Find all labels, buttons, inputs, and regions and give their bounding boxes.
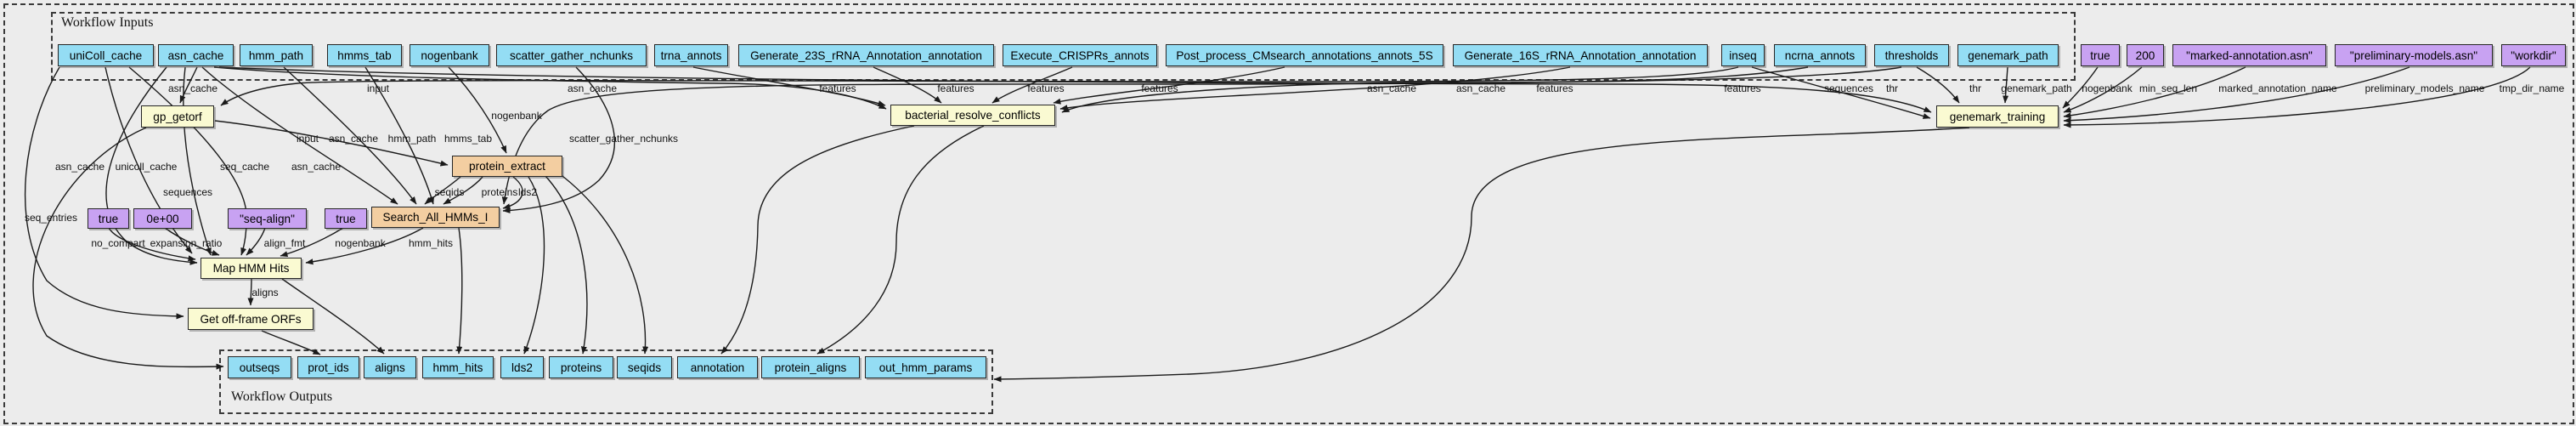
edge-label: hmms_tab — [444, 133, 492, 145]
scatter-node-protein_extract[interactable]: protein_extract — [452, 156, 562, 177]
step-node-gp_getorf[interactable]: gp_getorf — [141, 105, 214, 128]
edge — [504, 67, 1901, 204]
edge-label: hmm_hits — [409, 237, 453, 249]
edge-label: asn_cache — [1367, 82, 1416, 94]
input-node-Generate_16S_rRNA_Annotation_annotation[interactable]: Generate_16S_rRNA_Annotation_annotation — [1453, 44, 1708, 66]
literal-node-literal-workdir: "workdir" — [2501, 44, 2566, 66]
input-node-scatter_gather_nchunks[interactable]: scatter_gather_nchunks — [496, 44, 647, 66]
step-node-Get_off_frame_ORFs[interactable]: Get off-frame ORFs — [188, 308, 314, 330]
edge-label: seq_entries — [25, 212, 77, 224]
edge-label: features — [1141, 82, 1178, 94]
output-node-aligns[interactable]: aligns — [364, 356, 416, 378]
output-node-seqids[interactable]: seqids — [617, 356, 672, 378]
edge — [1917, 67, 1959, 103]
edge — [221, 67, 1738, 105]
edge-label: asn_cache — [329, 133, 378, 145]
scatter-node-Search_All_HMMs_I[interactable]: Search_All_HMMs_I — [371, 207, 500, 228]
output-node-proteins[interactable]: proteins — [549, 356, 613, 378]
edge-label: features — [937, 82, 974, 94]
edge-label: sequences — [163, 186, 212, 198]
edge-label: seqids — [435, 186, 465, 198]
output-node-annotation[interactable]: annotation — [677, 356, 758, 378]
edge — [246, 228, 265, 255]
literal-node-literal-marked-annotation: "marked-annotation.asn" — [2172, 44, 2326, 66]
output-node-outseqs[interactable]: outseqs — [228, 356, 291, 378]
literal-node-literal-0e00: 0e+00 — [133, 208, 192, 229]
edge-label: features — [1536, 82, 1573, 94]
edge-label: input — [367, 82, 389, 94]
edge-label: asn_cache — [291, 161, 341, 173]
output-node-hmm_hits[interactable]: hmm_hits — [422, 356, 494, 378]
edge-label: thr — [1969, 82, 1981, 94]
edge-label: nogenbank — [2082, 82, 2132, 94]
edge-label: nogenbank — [335, 237, 385, 249]
literal-node-literal-seq-align: "seq-align" — [228, 208, 307, 229]
input-node-Generate_23S_rRNA_Annotation_annotation[interactable]: Generate_23S_rRNA_Annotation_annotation — [738, 44, 994, 66]
workflow-diagram: Workflow Inputs Workflow Outputs — [0, 0, 2576, 426]
input-node-trna_annots[interactable]: trna_annots — [654, 44, 728, 66]
step-node-genemark_training[interactable]: genemark_training — [1936, 105, 2059, 128]
edge-label: proteins — [482, 186, 518, 198]
edge — [524, 177, 545, 354]
output-node-out_hmm_params[interactable]: out_hmm_params — [865, 356, 986, 378]
edge-label: aligns — [251, 287, 278, 298]
literal-node-literal-true-2: true — [88, 208, 129, 229]
edge — [817, 126, 984, 354]
edge — [214, 67, 886, 109]
edge — [262, 331, 320, 355]
edge-label: align_fmt — [264, 237, 306, 249]
edge-label: lds2 — [518, 186, 537, 198]
edge-label: scatter_gather_nchunks — [569, 133, 678, 145]
edge-label: marked_annotation_name — [2218, 82, 2336, 94]
edge — [994, 128, 1969, 379]
edge — [721, 126, 914, 354]
edge-label: no_compart — [91, 237, 144, 249]
step-node-Map_HMM_Hits[interactable]: Map HMM Hits — [201, 258, 302, 279]
input-node-uniColl_cache[interactable]: uniColl_cache — [58, 44, 154, 66]
input-node-asn_cache[interactable]: asn_cache — [158, 44, 234, 66]
literal-node-literal-true-3: true — [325, 208, 367, 229]
workflow-outputs-label: Workflow Outputs — [231, 389, 332, 405]
edge — [459, 228, 462, 354]
input-node-hmms_tab[interactable]: hmms_tab — [327, 44, 402, 66]
input-node-thresholds[interactable]: thresholds — [1874, 44, 1949, 66]
edge — [25, 67, 184, 316]
edge-label: expansion_ratio — [150, 237, 223, 249]
input-node-inseq[interactable]: inseq — [1721, 44, 1765, 66]
edge-label: preliminary_models_name — [2365, 82, 2485, 94]
edge-label: input — [297, 133, 319, 145]
edge-label: asn_cache — [1456, 82, 1505, 94]
edge-label: features — [1724, 82, 1760, 94]
edge-label: features — [819, 82, 856, 94]
edge — [219, 67, 1931, 112]
literal-node-literal-true-1: true — [2081, 44, 2120, 66]
edge-label: tmp_dir_name — [2500, 82, 2565, 94]
edge-label: unicoll_cache — [116, 161, 178, 173]
input-node-nogenbank[interactable]: nogenbank — [410, 44, 489, 66]
input-node-hmm_path[interactable]: hmm_path — [240, 44, 313, 66]
edge-label: nogenbank — [491, 110, 541, 122]
edge — [559, 173, 646, 354]
workflow-inputs-label: Workflow Inputs — [61, 15, 153, 31]
edge-label: asn_cache — [568, 82, 617, 94]
input-node-genemark_path[interactable]: genemark_path — [1957, 44, 2059, 66]
edge-label: sequences — [1824, 82, 1873, 94]
edge-label: seq_cache — [220, 161, 269, 173]
output-node-protein_aligns[interactable]: protein_aligns — [761, 356, 860, 378]
literal-node-literal-200: 200 — [2127, 44, 2164, 66]
edge-label: features — [1027, 82, 1064, 94]
edge-label: asn_cache — [55, 161, 105, 173]
edge-label: hmm_path — [388, 133, 437, 145]
step-node-bacterial_resolve_conflicts[interactable]: bacterial_resolve_conflicts — [890, 105, 1055, 126]
input-node-ncrna_annots[interactable]: ncrna_annots — [1774, 44, 1866, 66]
literal-node-literal-preliminary-models: "preliminary-models.asn" — [2335, 44, 2493, 66]
edge-label: thr — [1886, 82, 1898, 94]
input-node-Execute_CRISPRs_annots[interactable]: Execute_CRISPRs_annots — [1003, 44, 1157, 66]
edge-label: asn_cache — [168, 82, 217, 94]
edge-label: genemark_path — [2001, 82, 2071, 94]
output-node-prot_ids[interactable]: prot_ids — [297, 356, 359, 378]
input-node-Post_process_CMsearch_annotations_annots_5S[interactable]: Post_process_CMsearch_annotations_annots… — [1166, 44, 1443, 66]
edge — [545, 176, 587, 354]
output-node-lds2[interactable]: lds2 — [500, 356, 544, 378]
edge-label: min_seq_len — [2139, 82, 2197, 94]
